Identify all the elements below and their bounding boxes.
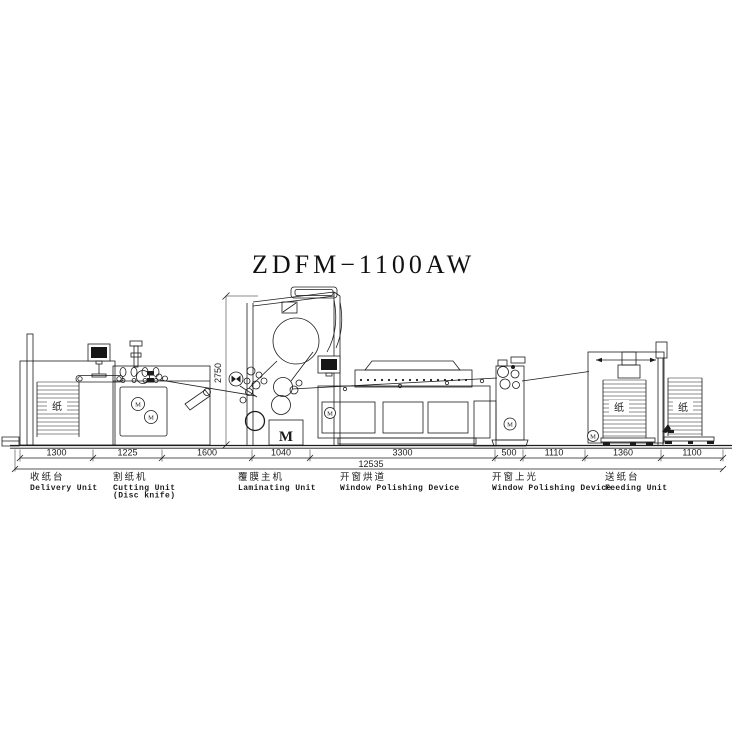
unit-label-en: Laminating Unit <box>238 484 316 493</box>
paper-label: 纸 <box>52 400 62 413</box>
svg-text:M: M <box>148 414 154 421</box>
unit-label-zh: 覆膜主机 <box>238 471 284 483</box>
dim-segment: 1300 <box>46 448 66 458</box>
dim-segment: 1225 <box>117 448 137 458</box>
paper-stack: 纸 <box>603 380 646 438</box>
unit-label-zh: 收纸台 <box>30 471 65 483</box>
feeding-unit: 纸 M <box>588 342 668 445</box>
drying-tunnel <box>318 361 490 444</box>
laminating-rollers <box>240 367 302 431</box>
polishing-unit: M <box>474 357 528 446</box>
unit-label-en: Feeding Unit <box>605 484 667 493</box>
delivery-arm <box>185 389 211 411</box>
paper-label: 纸 <box>678 401 688 414</box>
dim-height-label: 2750 <box>213 363 223 383</box>
motor-icon: M <box>132 398 145 411</box>
unit-label-zh: 开窗烘道 <box>340 471 386 483</box>
svg-text:M: M <box>279 429 293 445</box>
disc-knife-assembly <box>130 341 168 384</box>
dim-segment: 1360 <box>613 448 633 458</box>
paper-stack: 纸 <box>668 378 702 436</box>
machine-line-diagram: ZDFM−1100AW 纸 <box>0 0 750 750</box>
line-drawing: 纸 <box>0 0 750 750</box>
svg-text:M: M <box>327 410 333 417</box>
paper-stack: 纸 <box>37 382 79 437</box>
svg-text:M: M <box>507 421 513 428</box>
unit-labels: 收纸台 Delivery Unit 割纸机 Cutting Unit (Disc… <box>30 471 667 501</box>
main-motor-box: M <box>269 420 303 445</box>
unit-label-en: Delivery Unit <box>30 484 98 493</box>
unit-label-zh: 开窗上光 <box>492 471 538 483</box>
unit-label-en: Window Polishing Device <box>340 484 460 493</box>
web-path <box>160 372 589 398</box>
dimension-height: 2750 <box>213 293 258 449</box>
unit-label-en2: (Disc knife) <box>113 492 175 501</box>
dim-segment: 500 <box>501 448 516 458</box>
svg-text:M: M <box>135 401 141 408</box>
control-panel-icon <box>88 344 110 377</box>
motor-icon: M <box>145 411 158 424</box>
dim-segment: 1040 <box>271 448 291 458</box>
dim-segment: 1110 <box>545 448 564 458</box>
laminating-unit: M M <box>229 287 342 445</box>
paper-pallet-stack: 纸 <box>662 378 714 444</box>
entry-ramp <box>2 437 19 446</box>
pallet <box>601 438 655 442</box>
dim-segment: 1100 <box>682 448 701 458</box>
dim-segment: 3300 <box>392 448 412 458</box>
dim-total: 12535 <box>358 459 383 469</box>
unwind-core-icon <box>229 372 243 386</box>
motor-icon: M <box>588 431 599 442</box>
motor-icon: M <box>325 408 336 419</box>
side-post-box <box>656 342 667 358</box>
motor-icon: M <box>504 418 516 430</box>
delivery-post <box>27 334 33 445</box>
unit-label-en: Window Polishing Device <box>492 484 612 493</box>
svg-text:M: M <box>590 433 596 440</box>
control-panel-icon <box>318 356 340 376</box>
feeder-head <box>622 352 636 365</box>
unit-label-zh: 割纸机 <box>113 471 148 483</box>
delivery-unit: 纸 <box>20 334 123 445</box>
film-roll <box>273 318 319 364</box>
unit-label-zh: 送纸台 <box>605 471 640 483</box>
pallet <box>664 437 714 441</box>
dim-segment: 1600 <box>197 448 217 458</box>
cutting-unit: M M <box>113 341 211 445</box>
film-roll-bracket <box>282 287 337 313</box>
paper-label: 纸 <box>614 401 624 414</box>
